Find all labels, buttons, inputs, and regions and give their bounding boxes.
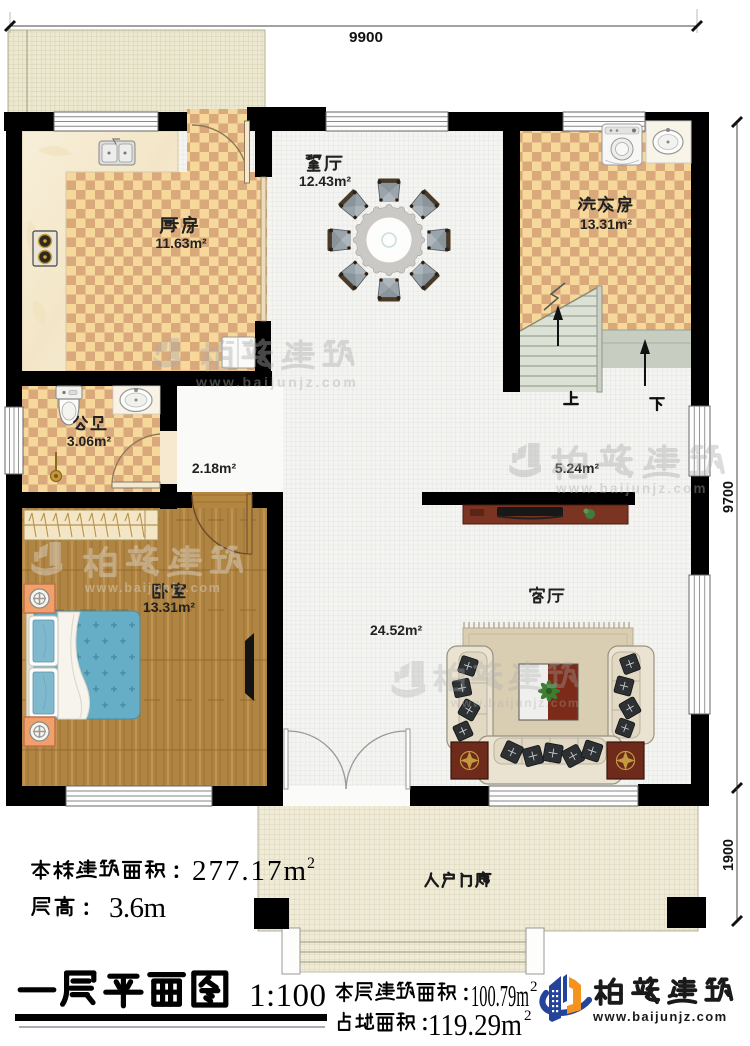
svg-text:www.baijunjz.com: www.baijunjz.com <box>84 581 222 595</box>
svg-text:www.baijunjz.com: www.baijunjz.com <box>195 374 358 390</box>
svg-text:3.06m²: 3.06m² <box>67 433 112 449</box>
svg-text:1900: 1900 <box>721 839 737 871</box>
svg-text:www.baijunjz.com: www.baijunjz.com <box>555 481 708 496</box>
svg-text:13.31m²: 13.31m² <box>143 599 195 615</box>
svg-text:11.63m²: 11.63m² <box>155 235 207 251</box>
svg-text:1:100: 1:100 <box>249 978 326 1014</box>
svg-text:3.6m: 3.6m <box>109 892 166 924</box>
svg-text:www.baijunjz.com: www.baijunjz.com <box>450 696 580 710</box>
svg-text:24.52m²: 24.52m² <box>370 622 422 638</box>
svg-text:9900: 9900 <box>349 30 383 46</box>
svg-text:119.29m: 119.29m <box>428 1007 522 1041</box>
svg-text:2: 2 <box>307 855 315 872</box>
svg-text:2: 2 <box>530 979 538 995</box>
svg-text:13.31m²: 13.31m² <box>580 216 632 232</box>
svg-text:12.43m²: 12.43m² <box>299 173 351 189</box>
svg-text:9700: 9700 <box>721 481 737 513</box>
svg-text:www.baijunjz.com: www.baijunjz.com <box>592 1009 728 1024</box>
svg-text:2.18m²: 2.18m² <box>192 460 237 476</box>
svg-text:2: 2 <box>524 1008 532 1024</box>
